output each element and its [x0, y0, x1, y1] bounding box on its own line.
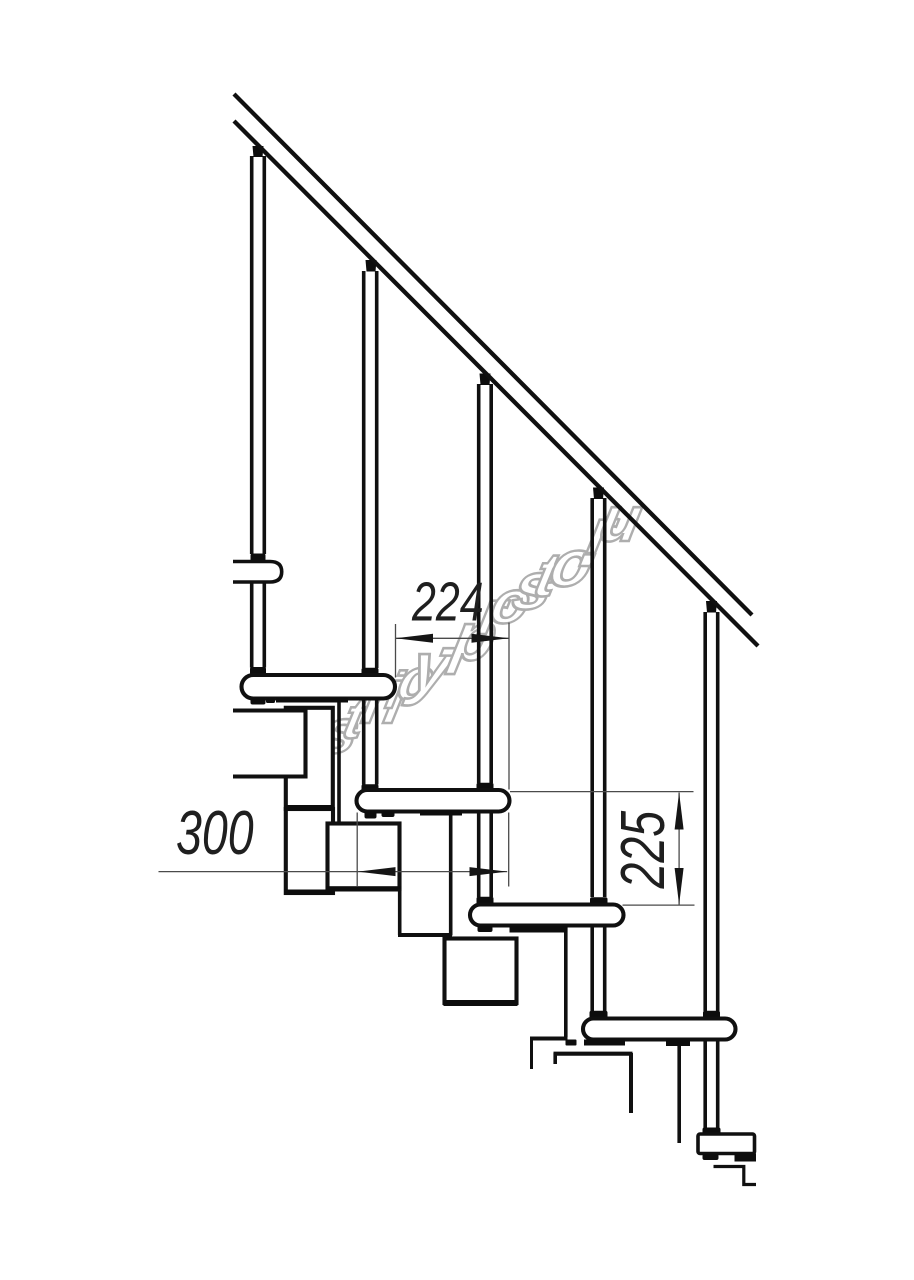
- svg-text:224: 224: [411, 571, 483, 632]
- svg-text:300: 300: [176, 797, 254, 867]
- svg-text:225: 225: [607, 810, 677, 889]
